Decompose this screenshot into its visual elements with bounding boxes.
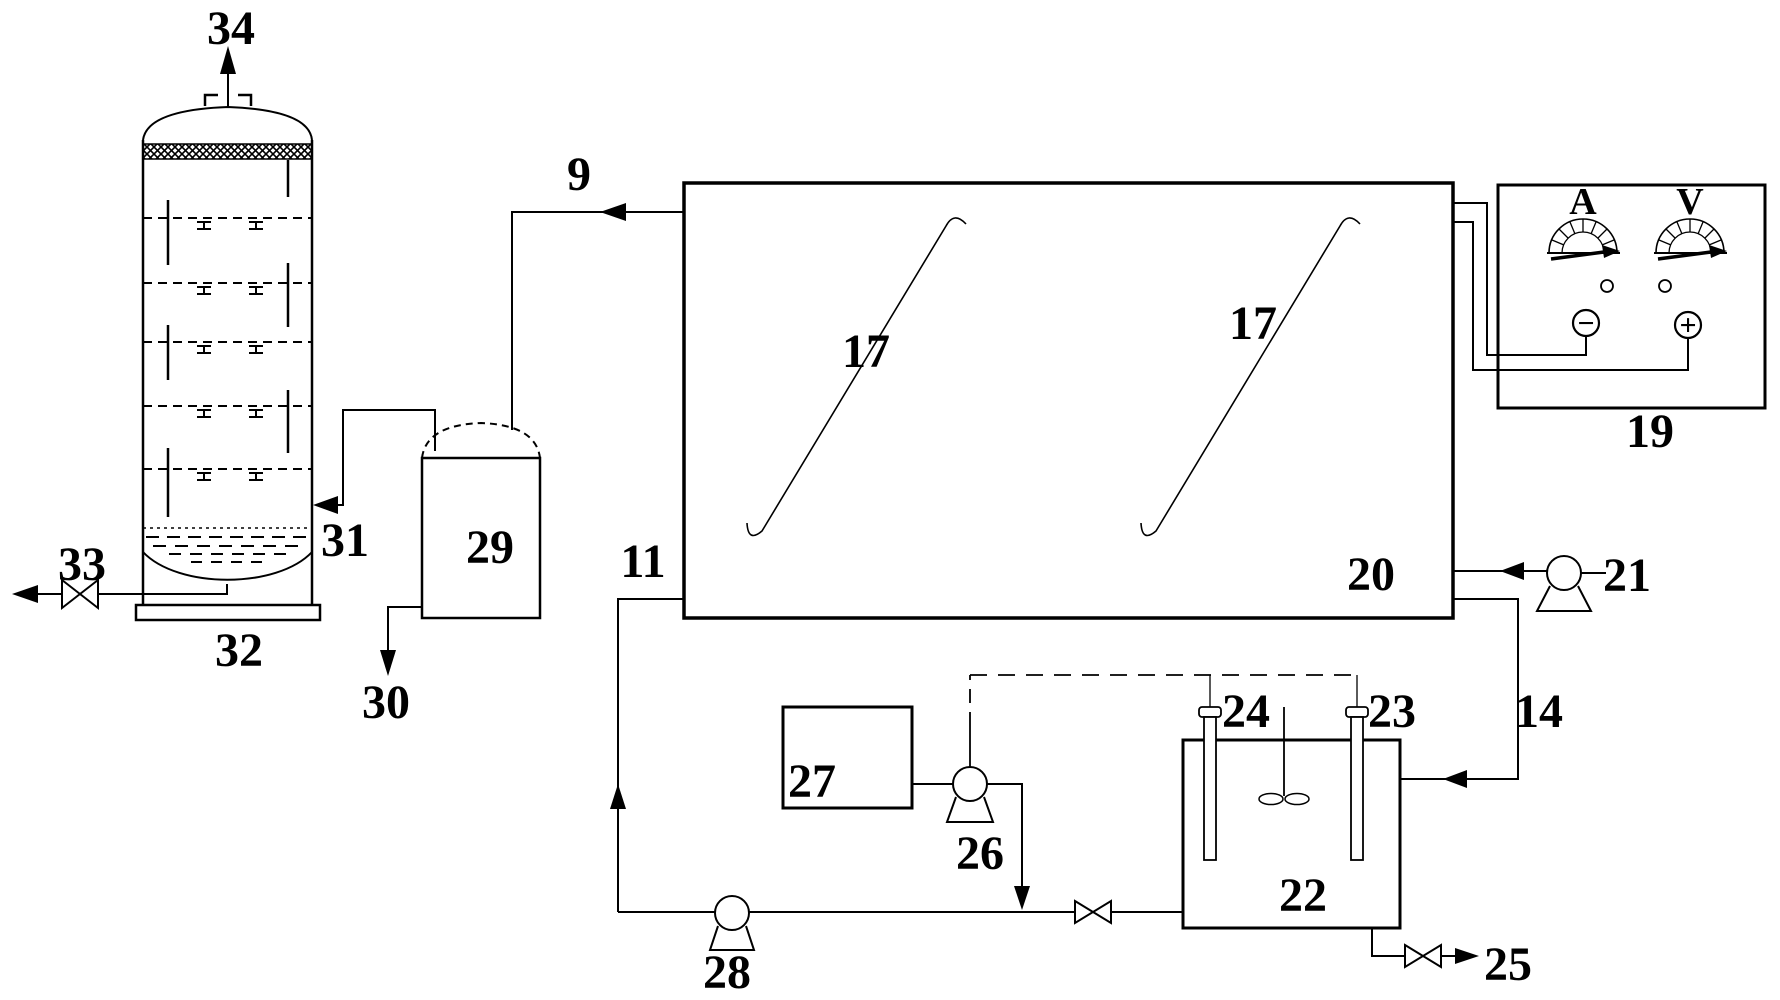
label-23: 23 bbox=[1368, 685, 1416, 738]
return-pipe bbox=[318, 410, 435, 505]
riser-line-11 bbox=[618, 599, 684, 912]
electrode-wires bbox=[1453, 203, 1688, 370]
label-33: 33 bbox=[58, 538, 106, 591]
voltmeter-letter: V bbox=[1676, 181, 1704, 223]
seal-drain-arrow-down bbox=[380, 650, 396, 676]
dosing-pump-icon bbox=[953, 767, 987, 801]
probe-23-icon bbox=[1351, 717, 1363, 860]
transfer-line-14 bbox=[1400, 599, 1518, 788]
flow-diagram-canvas: 34 9 11 17 17 19 20 21 22 23 24 25 26 27… bbox=[0, 0, 1780, 1000]
riser-arrow-up bbox=[610, 784, 626, 809]
probe-24-cap bbox=[1199, 707, 1221, 717]
label-21: 21 bbox=[1603, 549, 1651, 602]
loop-valve-icon bbox=[1075, 901, 1111, 923]
indicator-lamp-right bbox=[1659, 280, 1671, 292]
transfer-arrow-left bbox=[1443, 770, 1467, 788]
label-29: 29 bbox=[466, 521, 514, 574]
voltmeter-gauge-icon bbox=[1654, 219, 1727, 259]
label-19: 19 bbox=[1626, 405, 1674, 458]
label-32: 32 bbox=[215, 624, 263, 677]
return-line-31 bbox=[313, 410, 435, 514]
outlet-arrow-right bbox=[1455, 948, 1479, 964]
control-signal-line bbox=[970, 675, 1358, 768]
ammeter-gauge-icon bbox=[1547, 219, 1620, 259]
gas-arrow-left bbox=[600, 203, 626, 221]
vent-flange-right bbox=[238, 95, 251, 106]
stirrer-blade-left bbox=[1259, 794, 1283, 805]
label-17b: 17 bbox=[1229, 297, 1277, 350]
feed-pump bbox=[1453, 556, 1606, 611]
tower-dome bbox=[143, 107, 312, 140]
ammeter-letter: A bbox=[1569, 181, 1597, 223]
downcomers bbox=[168, 160, 288, 517]
gas-line-9 bbox=[512, 203, 684, 430]
vent-flange-left bbox=[205, 95, 218, 106]
tank-outlet-25 bbox=[1372, 928, 1479, 967]
label-11: 11 bbox=[620, 535, 665, 588]
probe-24-icon bbox=[1204, 717, 1216, 860]
label-20: 20 bbox=[1347, 548, 1395, 601]
seal-drain-pipe bbox=[388, 607, 422, 652]
outlet-pipe bbox=[1372, 928, 1405, 956]
power-supply-text: A V − + bbox=[1569, 181, 1704, 342]
transfer-pipe bbox=[1400, 599, 1518, 779]
tower-bottom-dish bbox=[143, 552, 312, 580]
recirculation-loop bbox=[610, 599, 1183, 950]
flow-diagram: 34 9 11 17 17 19 20 21 22 23 24 25 26 27… bbox=[0, 0, 1780, 1000]
label-30: 30 bbox=[362, 676, 410, 729]
electrode-plate-2 bbox=[1141, 218, 1360, 536]
demister-band bbox=[143, 144, 312, 159]
power-supply bbox=[1498, 185, 1765, 408]
return-arrow-left bbox=[313, 496, 338, 514]
label-27: 27 bbox=[788, 755, 836, 808]
label-17a: 17 bbox=[842, 325, 890, 378]
tray-supports bbox=[197, 222, 263, 480]
sump-liquid bbox=[143, 528, 312, 562]
positive-wire bbox=[1453, 222, 1688, 370]
reactor-body bbox=[684, 183, 1453, 618]
feed-arrow-left bbox=[1500, 562, 1524, 580]
power-supply-box bbox=[1498, 185, 1765, 408]
absorption-tower bbox=[136, 46, 320, 620]
label-28: 28 bbox=[703, 946, 751, 999]
label-9: 9 bbox=[567, 148, 591, 201]
outlet-valve-icon bbox=[1405, 945, 1441, 967]
gas-pipe bbox=[512, 212, 684, 430]
label-14: 14 bbox=[1515, 685, 1563, 738]
seal-tank-dome bbox=[422, 423, 540, 458]
label-24: 24 bbox=[1222, 685, 1270, 738]
dosing-arrow-down bbox=[1014, 886, 1030, 910]
stirrer-blade-right bbox=[1285, 794, 1309, 805]
label-26: 26 bbox=[956, 827, 1004, 880]
tower-skirt bbox=[136, 605, 320, 620]
seal-tank-drain-30 bbox=[380, 607, 422, 676]
probe-23-cap bbox=[1346, 707, 1368, 717]
feed-pump-icon bbox=[1547, 556, 1581, 590]
positive-terminal-symbol: + bbox=[1679, 309, 1696, 342]
label-25: 25 bbox=[1484, 938, 1532, 991]
label-31: 31 bbox=[321, 514, 369, 567]
indicator-lamp-left bbox=[1601, 280, 1613, 292]
negative-terminal-symbol: − bbox=[1577, 307, 1594, 340]
drain-pipe bbox=[98, 584, 227, 594]
drain-arrow-left bbox=[12, 585, 38, 603]
circulation-pump-icon bbox=[715, 896, 749, 930]
label-22: 22 bbox=[1279, 869, 1327, 922]
electro-reactor bbox=[684, 183, 1453, 618]
label-34: 34 bbox=[207, 2, 255, 55]
